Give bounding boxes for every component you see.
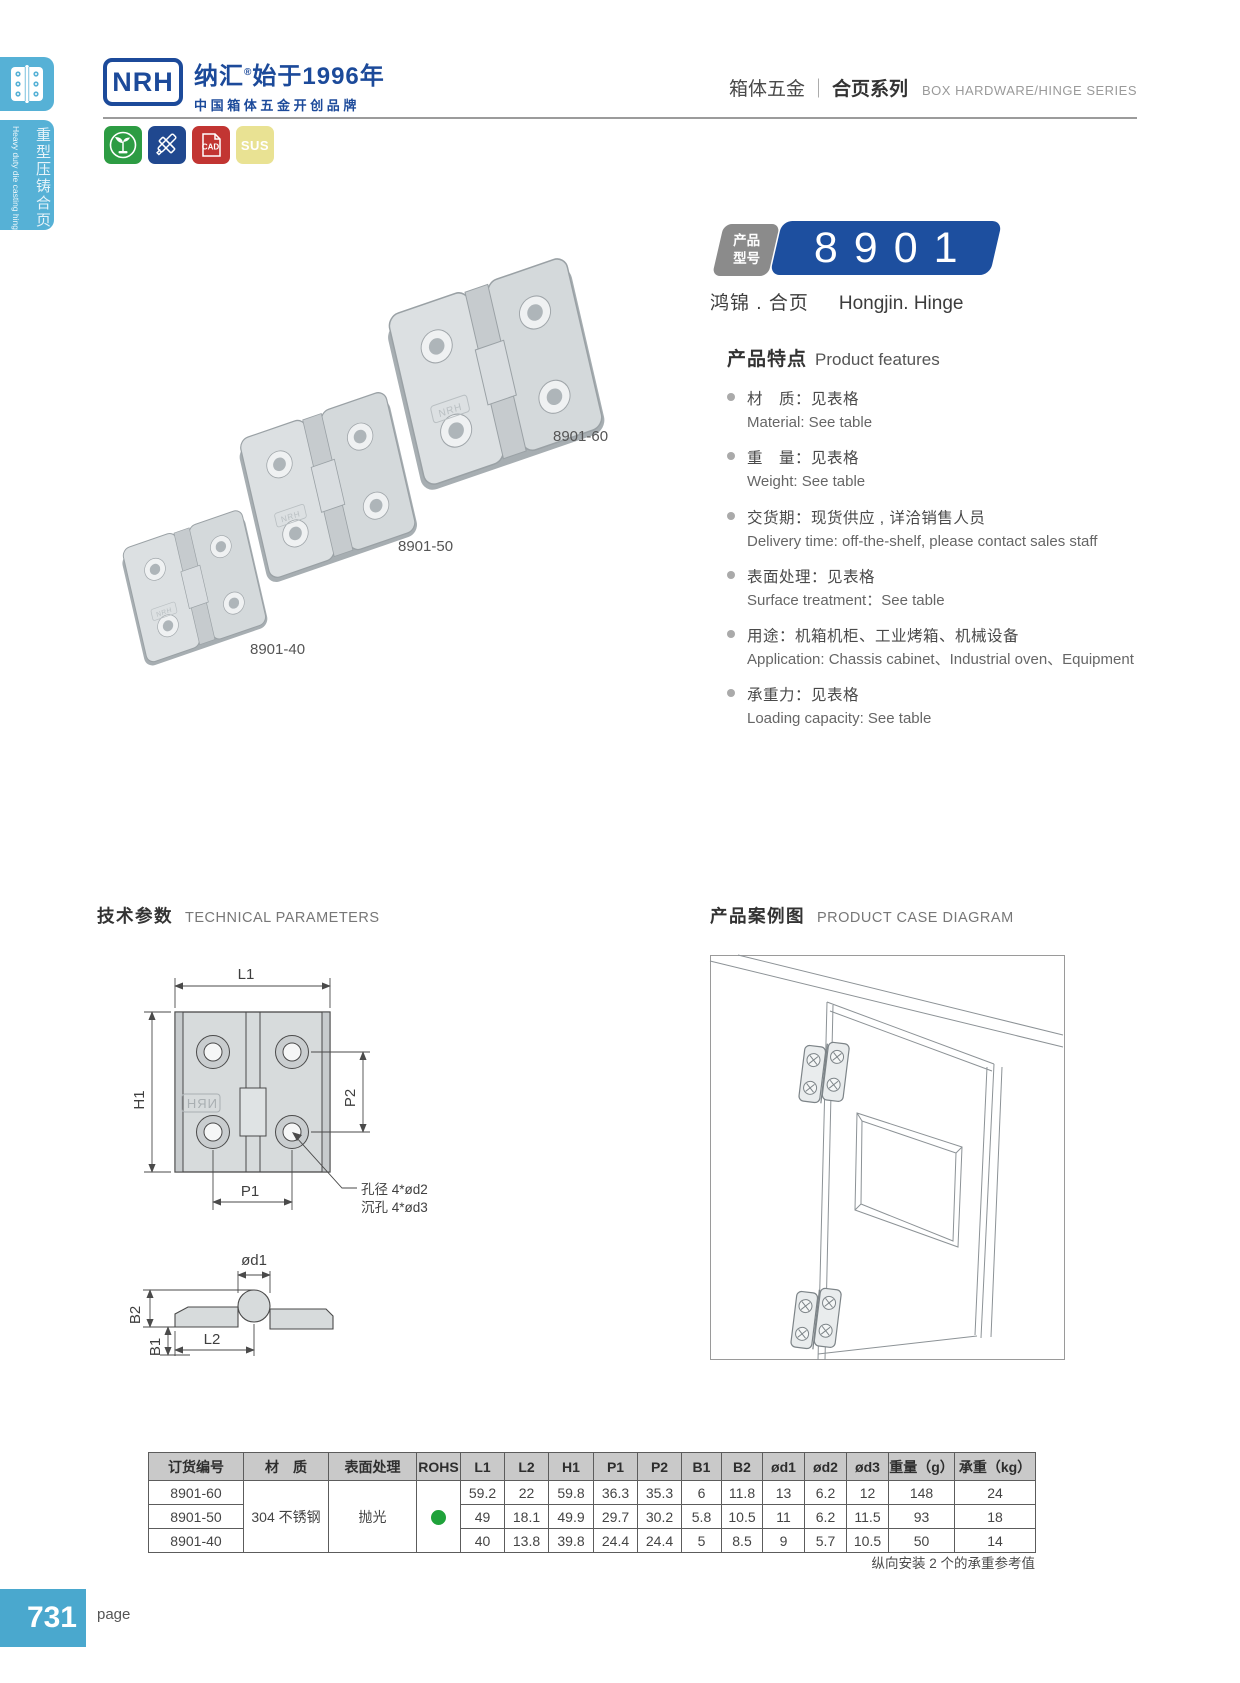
feature-delivery: 交货期：现货供应 , 详洽销售人员Delivery time: off-the-…	[727, 506, 1207, 552]
hinge-photo-50	[236, 389, 420, 585]
series-cn-left: 箱体五金	[729, 74, 805, 101]
feature-surface: 表面处理：见表格Surface treatment：See table	[727, 565, 1207, 611]
col-order-no: 订货编号	[149, 1453, 244, 1481]
col-b2: B2	[722, 1453, 763, 1481]
cell: 30.2	[638, 1505, 682, 1529]
dim-B1: B1	[147, 1338, 164, 1356]
case-hinge-top	[798, 1039, 849, 1106]
order-no: 8901-40	[149, 1529, 244, 1553]
dim-L1: L1	[238, 966, 255, 983]
bullet-dot	[727, 393, 735, 401]
product-names: 鸿锦 . 合页 Hongjin. Hinge	[710, 288, 963, 315]
bullet-dot	[727, 689, 735, 697]
sus-label: SUS	[241, 138, 269, 153]
cell: 49	[461, 1505, 505, 1529]
cell: 18.1	[505, 1505, 549, 1529]
cell: 12	[847, 1481, 889, 1505]
page-label: page	[97, 1606, 130, 1623]
rohs-badge	[104, 126, 142, 164]
cell: 9	[763, 1529, 805, 1553]
page-number-badge: 731	[0, 1589, 86, 1647]
series-en: BOX HARDWARE/HINGE SERIES	[922, 83, 1137, 98]
dim-H1: H1	[131, 1090, 148, 1109]
dim-L2: L2	[204, 1331, 221, 1348]
col-load: 承重（kg）	[955, 1453, 1036, 1481]
cell: 11.5	[847, 1505, 889, 1529]
dim-B2: B2	[127, 1306, 144, 1324]
catalog-page: { "header": { "logo_text": "NRH", "brand…	[0, 0, 1240, 1683]
cell: 5	[682, 1529, 722, 1553]
cell: 6.2	[805, 1505, 847, 1529]
model-number: 8901	[798, 224, 974, 273]
sidebar-category-cn: 重型压铸合页	[35, 127, 50, 229]
photo-label-40: 8901-40	[250, 641, 305, 658]
sus-badge: SUS	[236, 126, 274, 164]
rohs-cell	[417, 1481, 461, 1553]
feature-loading: 承重力：见表格Loading capacity: See table	[727, 683, 1207, 729]
cell: 5.7	[805, 1529, 847, 1553]
cell: 13	[763, 1481, 805, 1505]
col-p1: P1	[594, 1453, 638, 1481]
model-tag: 产品 型号	[712, 224, 780, 276]
feature-application: 用途：机箱机柜、工业烤箱、机械设备Application: Chassis ca…	[727, 624, 1207, 670]
hole-note-2: 沉孔 4*ød3	[361, 1200, 428, 1215]
cell: 10.5	[722, 1505, 763, 1529]
tech-parameters-heading: 技术参数TECHNICAL PARAMETERS	[97, 903, 380, 928]
cad-file-icon: CAD	[196, 130, 226, 160]
hole-note-1: 孔径 4*ød2	[361, 1182, 428, 1197]
bullet-dot	[727, 512, 735, 520]
feature-weight: 重 量：见表格Weight: See table	[727, 446, 1207, 492]
col-material: 材 质	[244, 1453, 329, 1481]
col-rohs: ROHS	[417, 1453, 461, 1481]
cell: 35.3	[638, 1481, 682, 1505]
brand-line1: 纳汇®始于1996年	[194, 56, 385, 91]
product-name-cn: 鸿锦 . 合页	[710, 288, 809, 315]
series-cn-right: 合页系列	[832, 74, 908, 101]
cell: 6	[682, 1481, 722, 1505]
cell: 24.4	[638, 1529, 682, 1553]
cell: 18	[955, 1505, 1036, 1529]
model-tag-text: 产品 型号	[733, 232, 760, 267]
cell: 59.8	[549, 1481, 594, 1505]
design-badge	[148, 126, 186, 164]
cell: 24	[955, 1481, 1036, 1505]
case-hinge-bottom	[790, 1285, 841, 1352]
header-divider	[103, 117, 1137, 119]
cell: 49.9	[549, 1505, 594, 1529]
order-no: 8901-60	[149, 1481, 244, 1505]
cell: 8.5	[722, 1529, 763, 1553]
bullet-dot	[727, 571, 735, 579]
col-p2: P2	[638, 1453, 682, 1481]
cell: 93	[889, 1505, 955, 1529]
pencil-ruler-icon	[152, 130, 182, 160]
cell: 50	[889, 1529, 955, 1553]
col-od3: ød3	[847, 1453, 889, 1481]
bullet-dot	[727, 630, 735, 638]
dim-P2: P2	[342, 1089, 359, 1107]
photo-label-60: 8901-60	[553, 428, 608, 445]
cell: 29.7	[594, 1505, 638, 1529]
nrh-logo: NRH	[103, 58, 183, 106]
col-weight: 重量（g）	[889, 1453, 955, 1481]
tech-drawing-side-view: ød1 B2 B1 L2	[110, 1243, 430, 1378]
cell: 10.5	[847, 1529, 889, 1553]
col-od2: ød2	[805, 1453, 847, 1481]
cell: 24.4	[594, 1529, 638, 1553]
bullet-dot	[727, 452, 735, 460]
series-title: 箱体五金 ｜ 合页系列 BOX HARDWARE/HINGE SERIES	[729, 74, 1137, 101]
col-l1: L1	[461, 1453, 505, 1481]
cell: 5.8	[682, 1505, 722, 1529]
rohs-green-dot	[431, 1510, 446, 1525]
cell: 36.3	[594, 1481, 638, 1505]
dim-od1: ød1	[241, 1252, 267, 1269]
brand-line2: 中国箱体五金开创品牌	[194, 95, 385, 114]
sidebar-category-en: Heavy duty die casting hinge	[11, 126, 21, 235]
hinge-icon	[10, 64, 44, 104]
hinge-photo-40	[119, 508, 269, 668]
drawing-embossed-logo: NRH	[186, 1096, 217, 1111]
model-banner: 8901	[770, 221, 1002, 275]
cell: 13.8	[505, 1529, 549, 1553]
table-row: 8901-60 304 不锈钢 抛光 59.2 22 59.8 36.3 35.…	[149, 1481, 1036, 1505]
cell: 11	[763, 1505, 805, 1529]
cell: 59.2	[461, 1481, 505, 1505]
cell: 6.2	[805, 1481, 847, 1505]
cell: 22	[505, 1481, 549, 1505]
rohs-leaf-icon	[108, 130, 138, 160]
spec-table: 订货编号 材 质 表面处理 ROHS L1 L2 H1 P1 P2 B1 B2 …	[148, 1452, 1036, 1553]
col-surface: 表面处理	[329, 1453, 417, 1481]
hinge-photo-60	[383, 255, 607, 494]
case-diagram-heading: 产品案例图PRODUCT CASE DIAGRAM	[710, 903, 1014, 928]
order-no: 8901-50	[149, 1505, 244, 1529]
col-h1: H1	[549, 1453, 594, 1481]
product-case-diagram	[710, 955, 1065, 1360]
table-footnote: 纵向安装 2 个的承重参考值	[148, 1552, 1035, 1572]
features-title: 产品特点Product features	[727, 344, 1207, 371]
cell: 40	[461, 1529, 505, 1553]
col-b1: B1	[682, 1453, 722, 1481]
page-number: 731	[27, 1601, 77, 1635]
surface-cell: 抛光	[329, 1481, 417, 1553]
dim-P1: P1	[241, 1183, 259, 1200]
tech-drawing-front-view: NRH L1 H1 P2 P1 孔径 4*ød2 沉孔 4*ød3	[120, 948, 480, 1238]
photo-label-50: 8901-50	[398, 538, 453, 555]
series-separator: ｜	[809, 74, 828, 101]
cell: 148	[889, 1481, 955, 1505]
cad-badge: CAD	[192, 126, 230, 164]
material-cell: 304 不锈钢	[244, 1481, 329, 1553]
cell: 11.8	[722, 1481, 763, 1505]
product-name-en: Hongjin. Hinge	[839, 293, 964, 315]
feature-material: 材 质：见表格Material: See table	[727, 387, 1207, 433]
nrh-logo-text: NRH	[112, 67, 174, 98]
cell: 39.8	[549, 1529, 594, 1553]
brand-block: 纳汇®始于1996年 中国箱体五金开创品牌	[194, 56, 385, 114]
col-od1: ød1	[763, 1453, 805, 1481]
product-features: 产品特点Product features 材 质：见表格Material: Se…	[727, 344, 1207, 743]
sidebar-hinge-badge	[0, 57, 54, 111]
sidebar-category: 重型压铸合页 Heavy duty die casting hinge	[0, 120, 54, 230]
col-l2: L2	[505, 1453, 549, 1481]
table-header-row: 订货编号 材 质 表面处理 ROHS L1 L2 H1 P1 P2 B1 B2 …	[149, 1453, 1036, 1481]
product-photos: NRH 8901-60 8901-50 8901-40	[85, 225, 665, 665]
cell: 14	[955, 1529, 1036, 1553]
cad-label: CAD	[202, 143, 220, 152]
